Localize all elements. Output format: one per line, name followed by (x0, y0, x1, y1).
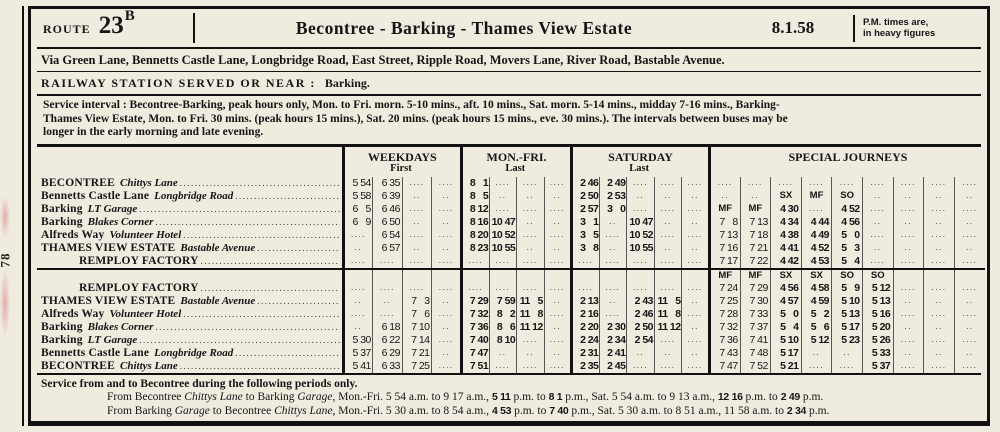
no-service-cell: .. (373, 295, 403, 308)
no-service-cell: .. (682, 216, 710, 229)
time-cell: 250 (627, 321, 655, 334)
no-service-cell: .... (544, 203, 572, 216)
time-cell: 444 (801, 216, 832, 229)
station-cell: BarkingBlakes Corner (37, 216, 343, 229)
no-service-cell: .... (654, 177, 682, 190)
no-service-cell: .... (627, 282, 655, 295)
no-service-cell: .... (432, 229, 462, 242)
table-row: Alfreds WayVolunteer Hotel........76....… (37, 308, 985, 321)
no-service-cell: .... (343, 229, 373, 242)
no-service-cell: .... (862, 177, 893, 190)
no-service-cell: .... (682, 360, 710, 373)
no-service-cell: .... (954, 177, 985, 190)
no-service-cell: .... (489, 255, 517, 269)
no-service-cell: .. (893, 242, 924, 255)
time-cell: 736 (461, 321, 489, 334)
dot-leader (235, 348, 339, 358)
time-cell: 650 (373, 216, 403, 229)
no-service-cell: .. (544, 321, 572, 334)
railway-station-line: RAILWAY STATION SERVED OR NEAR : Barking… (37, 72, 981, 96)
time-cell: 521 (771, 360, 802, 373)
time-cell: 512 (801, 334, 832, 347)
time-cell: 81 (461, 177, 489, 190)
time-cell: 633 (373, 360, 403, 373)
no-service-cell: .... (432, 334, 462, 347)
station-cell: BarkingLT Garage (37, 203, 343, 216)
no-service-cell: .. (682, 190, 710, 203)
table-row: BarkingBlakes Corner..618710..736861112.… (37, 321, 985, 334)
time-cell: 73 (402, 295, 432, 308)
day-code-cell: MF (740, 269, 771, 282)
time-cell: 710 (402, 321, 432, 334)
station-cell: REMPLOY FACTORY (37, 255, 343, 269)
no-service-cell: .... (801, 203, 832, 216)
no-service-cell: .. (954, 242, 985, 255)
time-cell: 30 (599, 203, 627, 216)
time-cell: 250 (572, 190, 600, 203)
time-cell: 1052 (489, 229, 517, 242)
time-cell: 82 (489, 308, 517, 321)
time-cell: 1112 (517, 321, 545, 334)
no-service-cell: .... (893, 334, 924, 347)
no-service-cell: .. (654, 347, 682, 360)
day-code-cell: SO (832, 190, 863, 203)
time-cell: 541 (343, 360, 373, 373)
time-cell: 458 (801, 282, 832, 295)
time-cell: 752 (740, 360, 771, 373)
table-row: THAMES VIEW ESTATEBastable Avenue..657..… (37, 242, 985, 255)
no-service-cell: .... (893, 360, 924, 373)
no-service-cell: .... (893, 203, 924, 216)
time-cell: 224 (572, 334, 600, 347)
no-service-cell: .... (954, 255, 985, 269)
no-service-cell: .... (771, 177, 802, 190)
no-service-cell: .. (544, 242, 572, 255)
no-service-cell: .... (654, 229, 682, 242)
time-cell: 430 (771, 203, 802, 216)
no-service-cell: .... (924, 308, 955, 321)
time-cell: 513 (862, 295, 893, 308)
time-cell: 50 (832, 229, 863, 242)
no-service-cell: .... (461, 255, 489, 269)
day-code-cell: SX (771, 190, 802, 203)
no-service-cell: .. (924, 321, 955, 334)
no-service-cell: .... (517, 282, 545, 295)
empty-cell (924, 269, 955, 282)
no-service-cell: .... (893, 229, 924, 242)
station-cell: Alfreds WayVolunteer Hotel (37, 229, 343, 242)
time-cell: 721 (402, 347, 432, 360)
time-cell: 812 (461, 203, 489, 216)
time-cell: 722 (740, 255, 771, 269)
no-service-cell: .. (432, 347, 462, 360)
time-cell: 456 (832, 216, 863, 229)
time-cell: 31 (572, 216, 600, 229)
footer-intro: Service from and to Becontree during the… (41, 378, 977, 392)
day-code-cell: MF (801, 190, 832, 203)
time-cell: 220 (572, 321, 600, 334)
time-cell: 823 (461, 242, 489, 255)
time-cell: 748 (740, 347, 771, 360)
no-service-cell: .... (517, 229, 545, 242)
no-service-cell: .. (862, 242, 893, 255)
no-service-cell: .... (832, 177, 863, 190)
time-cell: 115 (654, 295, 682, 308)
no-service-cell: .. (432, 242, 462, 255)
no-service-cell: .. (432, 190, 462, 203)
table-row: REMPLOY FACTORY.........................… (37, 255, 985, 269)
no-service-cell: .... (682, 282, 710, 295)
no-service-cell: .... (954, 308, 985, 321)
time-cell: 629 (373, 347, 403, 360)
time-cell: 65 (343, 203, 373, 216)
no-service-cell: .... (654, 282, 682, 295)
time-cell: 728 (709, 308, 740, 321)
no-service-cell: .... (544, 308, 572, 321)
no-service-cell: .... (599, 308, 627, 321)
no-service-cell: .... (954, 360, 985, 373)
no-service-cell: .. (862, 216, 893, 229)
time-cell: 78 (709, 216, 740, 229)
table-row: BarkingLT Garage530622714....740810.....… (37, 334, 985, 347)
no-service-cell: .... (924, 177, 955, 190)
timetable: WEEKDAYSFirst MON.-FRI.Last SATURDAYLast… (37, 147, 985, 373)
no-service-cell: .. (544, 347, 572, 360)
no-service-cell: .. (343, 242, 373, 255)
time-cell: 86 (489, 321, 517, 334)
no-service-cell: .... (682, 229, 710, 242)
no-service-cell: .... (862, 203, 893, 216)
time-cell: 533 (862, 347, 893, 360)
no-service-cell: .... (801, 177, 832, 190)
time-cell: 523 (832, 334, 863, 347)
empty-cell (461, 269, 489, 282)
time-cell: 747 (461, 347, 489, 360)
no-service-cell: .... (432, 308, 462, 321)
time-cell: 816 (461, 216, 489, 229)
station-cell: Bennetts Castle LaneLongbridge Road (37, 190, 343, 203)
no-service-cell: .... (373, 308, 403, 321)
dot-leader (180, 361, 340, 371)
no-service-cell: .. (682, 347, 710, 360)
no-service-cell: .... (654, 255, 682, 269)
no-service-cell: .... (682, 177, 710, 190)
no-service-cell: .. (599, 242, 627, 255)
footer-text-segment: 2 49 (781, 391, 800, 403)
group-header-wk: WEEKDAYSFirst (343, 147, 461, 177)
time-cell: 725 (709, 295, 740, 308)
table-row: BarkingLT Garage65646........812........… (37, 203, 985, 216)
no-service-cell: .. (924, 295, 955, 308)
empty-cell (599, 269, 627, 282)
no-service-cell: .. (682, 242, 710, 255)
time-cell: 743 (709, 347, 740, 360)
no-service-cell: .... (402, 203, 432, 216)
no-service-cell: .. (924, 216, 955, 229)
no-service-cell: .... (924, 282, 955, 295)
table-row: Alfreds WayVolunteer Hotel....654.......… (37, 229, 985, 242)
time-cell: 517 (832, 321, 863, 334)
time-cell: 751 (461, 360, 489, 373)
empty-cell (572, 269, 600, 282)
empty-cell (954, 269, 985, 282)
footer-text-segment: 5 11 (492, 391, 511, 403)
time-cell: 231 (572, 347, 600, 360)
footer-text-segment: 8 1 (549, 391, 563, 403)
time-cell: 520 (862, 321, 893, 334)
no-service-cell: .. (893, 321, 924, 334)
time-cell: 76 (402, 308, 432, 321)
time-cell: 456 (771, 282, 802, 295)
no-service-cell: .... (893, 177, 924, 190)
no-service-cell: .... (924, 360, 955, 373)
footer-text-segment: p.m. (800, 391, 823, 403)
footer-text-segment: Chittys Lane (274, 405, 332, 417)
time-cell: 714 (402, 334, 432, 347)
no-service-cell: .. (709, 190, 740, 203)
time-cell: 53 (832, 242, 863, 255)
no-service-cell: .... (862, 255, 893, 269)
time-cell: 510 (832, 295, 863, 308)
empty-cell (432, 269, 462, 282)
empty-cell (343, 269, 373, 282)
no-service-cell: .... (517, 255, 545, 269)
station-cell: Alfreds WayVolunteer Hotel (37, 308, 343, 321)
no-service-cell: .... (402, 229, 432, 242)
time-cell: 115 (517, 295, 545, 308)
no-service-cell: .... (654, 334, 682, 347)
no-service-cell: .... (654, 203, 682, 216)
no-service-cell: .. (517, 347, 545, 360)
time-cell: 241 (599, 347, 627, 360)
no-service-cell: .... (432, 203, 462, 216)
dot-leader (183, 230, 339, 240)
day-code-cell: MF (740, 203, 771, 216)
no-service-cell: .... (343, 282, 373, 295)
day-code-cell: SO (862, 269, 893, 282)
time-cell: 457 (771, 295, 802, 308)
time-cell: 234 (599, 334, 627, 347)
time-cell: 713 (709, 229, 740, 242)
table-row: Bennetts Castle LaneLongbridge Road53762… (37, 347, 985, 360)
no-service-cell: .... (801, 360, 832, 373)
day-code-cell: SX (771, 269, 802, 282)
no-service-cell: .... (924, 334, 955, 347)
dot-leader (180, 178, 340, 188)
day-code-cell: MF (709, 203, 740, 216)
dot-leader (257, 296, 339, 306)
time-cell: 713 (740, 216, 771, 229)
service-interval-note: Service interval : Becontree-Barking, pe… (37, 96, 981, 147)
time-cell: 434 (771, 216, 802, 229)
empty-cell (544, 269, 572, 282)
no-service-cell: .. (801, 347, 832, 360)
no-service-cell: .. (544, 295, 572, 308)
route-word: Route (43, 22, 91, 37)
no-service-cell: .... (832, 360, 863, 373)
no-service-cell: .. (924, 347, 955, 360)
day-codes-row: MFMFSXSXSOSO (37, 269, 985, 282)
dot-leader (235, 191, 339, 201)
route-box: Route 23B (37, 13, 195, 43)
no-service-cell: .... (954, 229, 985, 242)
table-row: BECONTREEChittys Lane541633725....751...… (37, 360, 985, 373)
no-service-cell: .. (599, 216, 627, 229)
no-service-cell: .. (599, 295, 627, 308)
time-cell: 517 (771, 347, 802, 360)
time-cell: 245 (599, 360, 627, 373)
group-header-sp: SPECIAL JOURNEYS (709, 147, 985, 177)
no-service-cell: .. (954, 190, 985, 203)
time-cell: 558 (343, 190, 373, 203)
time-cell: 537 (343, 347, 373, 360)
time-cell: 1055 (489, 242, 517, 255)
via-roads-line: Via Green Lane, Bennetts Castle Lane, Lo… (37, 49, 981, 72)
time-cell: 639 (373, 190, 403, 203)
no-service-cell: .. (893, 295, 924, 308)
no-service-cell: .... (402, 282, 432, 295)
no-service-cell: .. (954, 321, 985, 334)
table-row: THAMES VIEW ESTATEBastable Avenue....73.… (37, 295, 985, 308)
time-cell: 452 (832, 203, 863, 216)
dot-leader (139, 204, 339, 214)
time-cell: 59 (832, 282, 863, 295)
no-service-cell: .... (544, 282, 572, 295)
time-cell: 810 (489, 334, 517, 347)
page-title: Becontree - Barking - Thames View Estate (195, 18, 733, 39)
no-service-cell: .... (544, 360, 572, 373)
time-cell: 1052 (627, 229, 655, 242)
no-service-cell: .. (343, 321, 373, 334)
station-cell: THAMES VIEW ESTATEBastable Avenue (37, 242, 343, 255)
railway-label: RAILWAY STATION SERVED OR NEAR : (41, 76, 316, 90)
time-cell: 1047 (627, 216, 655, 229)
time-cell: 747 (709, 360, 740, 373)
no-service-cell: .... (461, 282, 489, 295)
station-cell: REMPLOY FACTORY (37, 282, 343, 295)
footer-text-segment: to Becontree (210, 405, 274, 417)
table-row: REMPLOY FACTORY.........................… (37, 282, 985, 295)
empty-cell (654, 269, 682, 282)
day-code-cell: SO (832, 269, 863, 282)
no-service-cell: .... (402, 177, 432, 190)
table-row: Bennetts Castle LaneLongbridge Road55863… (37, 190, 985, 203)
no-service-cell: .. (924, 190, 955, 203)
footer-text-segment: p.m. (806, 405, 829, 417)
no-service-cell: .... (373, 282, 403, 295)
time-cell: 516 (862, 308, 893, 321)
no-service-cell: .... (627, 255, 655, 269)
station-cell: Bennetts Castle LaneLongbridge Road (37, 347, 343, 360)
time-cell: 657 (373, 242, 403, 255)
no-service-cell: .... (572, 255, 600, 269)
time-cell: 526 (862, 334, 893, 347)
no-service-cell: .... (627, 203, 655, 216)
time-cell: 50 (771, 308, 802, 321)
no-service-cell: .. (682, 321, 710, 334)
no-service-cell: .... (343, 308, 373, 321)
dot-leader (155, 322, 339, 332)
no-service-cell: .. (402, 216, 432, 229)
dot-leader (183, 309, 339, 319)
time-cell: 741 (740, 334, 771, 347)
time-cell: 737 (740, 321, 771, 334)
empty-cell (893, 269, 924, 282)
station-column-header (37, 147, 343, 177)
time-cell: 759 (489, 295, 517, 308)
no-service-cell: .. (432, 216, 462, 229)
time-cell: 230 (599, 321, 627, 334)
no-service-cell: .... (517, 177, 545, 190)
dot-leader (155, 217, 339, 227)
no-service-cell: .. (924, 242, 955, 255)
no-service-cell: .. (489, 190, 517, 203)
footer-line: From Barking Garage to Becontree Chittys… (41, 405, 977, 419)
no-service-cell: .. (432, 321, 462, 334)
no-service-cell: .... (654, 360, 682, 373)
empty-cell (627, 269, 655, 282)
no-service-cell: .. (654, 190, 682, 203)
time-cell: 118 (517, 308, 545, 321)
station-cell: THAMES VIEW ESTATEBastable Avenue (37, 295, 343, 308)
time-cell: 216 (572, 308, 600, 321)
no-service-cell: .... (893, 255, 924, 269)
time-cell: 510 (771, 334, 802, 347)
footer-text-segment: to Barking (243, 391, 298, 403)
no-service-cell: .. (544, 216, 572, 229)
footer-text-segment: 7 40 (549, 405, 568, 417)
time-cell: 736 (709, 334, 740, 347)
no-service-cell: .... (954, 334, 985, 347)
no-service-cell: .... (489, 282, 517, 295)
time-cell: 730 (740, 295, 771, 308)
no-service-cell: .. (343, 295, 373, 308)
footer-text-segment: From Barking (107, 405, 175, 417)
time-cell: 449 (801, 229, 832, 242)
no-service-cell: .... (402, 255, 432, 269)
no-service-cell: .... (682, 308, 710, 321)
empty-cell (373, 269, 403, 282)
footer-text-segment: , Mon.-Fri. 5 30 a.m. to 8 54 a.m., (333, 405, 492, 417)
page-number: 78 (0, 253, 14, 268)
group-header-mf: MON.-FRI.Last (461, 147, 571, 177)
no-service-cell: .... (517, 360, 545, 373)
footer-text-segment: 2 34 (787, 405, 806, 417)
day-code-cell: SX (801, 269, 832, 282)
table-row: BECONTREEChittys Lane554635........81...… (37, 177, 985, 190)
time-cell: 459 (801, 295, 832, 308)
no-service-cell: .... (862, 229, 893, 242)
empty-cell (517, 269, 545, 282)
no-service-cell: .... (489, 360, 517, 373)
empty-cell (402, 269, 432, 282)
no-service-cell: .... (572, 282, 600, 295)
station-cell: BECONTREEChittys Lane (37, 360, 343, 373)
time-cell: 441 (771, 242, 802, 255)
time-cell: 249 (599, 177, 627, 190)
no-service-cell: .... (517, 203, 545, 216)
no-service-cell: .... (343, 255, 373, 269)
footer-text-segment: From Becontree (107, 391, 184, 403)
no-service-cell: .. (627, 347, 655, 360)
time-cell: 213 (572, 295, 600, 308)
time-cell: 740 (461, 334, 489, 347)
no-service-cell: .. (954, 347, 985, 360)
no-service-cell: .... (489, 203, 517, 216)
no-service-cell: .. (544, 190, 572, 203)
no-service-cell: .. (517, 216, 545, 229)
no-service-cell: .... (544, 255, 572, 269)
